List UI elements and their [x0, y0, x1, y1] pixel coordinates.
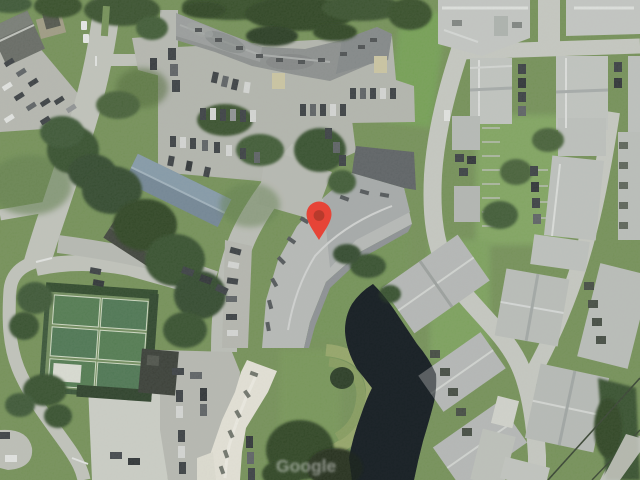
svg-text:Google: Google [276, 456, 337, 476]
